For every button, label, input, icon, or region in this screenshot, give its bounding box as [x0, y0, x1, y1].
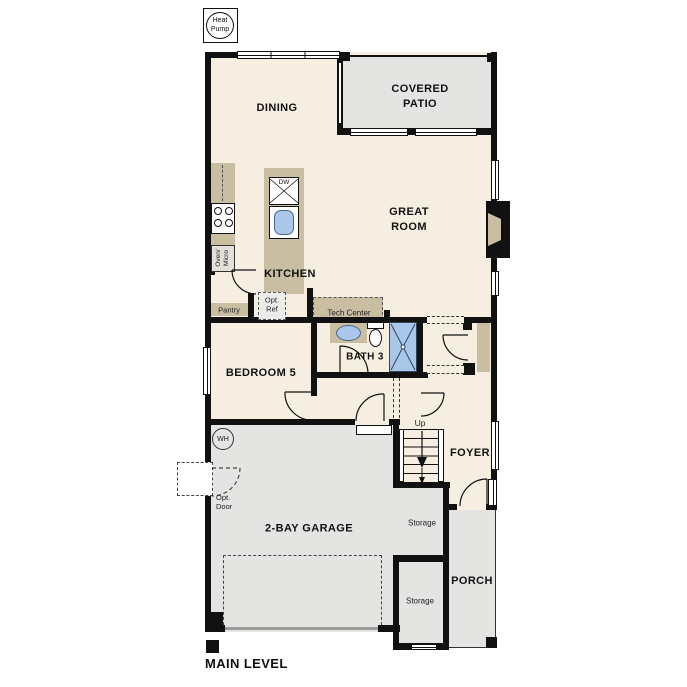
stair-treads	[404, 429, 439, 482]
window	[338, 62, 343, 124]
window	[491, 160, 499, 200]
room-label-dining: DINING	[257, 102, 298, 114]
window	[491, 421, 499, 470]
heat-pump-line1: Heat	[213, 17, 228, 25]
porch-column	[486, 637, 497, 648]
room-label-kitchen: KITCHEN	[264, 268, 316, 280]
room-label-garage: 2-BAY GARAGE	[259, 522, 359, 537]
wall	[443, 510, 449, 650]
shower	[389, 322, 417, 372]
patio-slider-door	[415, 128, 477, 136]
window	[237, 51, 340, 59]
kitchen-counter-upper	[211, 163, 235, 203]
cooktop	[211, 203, 235, 234]
stair-rail	[438, 429, 444, 482]
patio-slider-door	[350, 128, 408, 136]
wall	[378, 625, 400, 632]
wall	[311, 322, 317, 396]
floor-plan: Heat Pump	[0, 0, 687, 687]
dishwasher: DW	[269, 177, 299, 205]
label-opt-ref: Opt. Ref	[265, 296, 279, 315]
kitchen-counter-mid	[211, 234, 235, 245]
sink-basin	[274, 210, 294, 235]
fireplace	[486, 201, 510, 258]
wall	[307, 288, 313, 320]
wall	[417, 322, 423, 378]
water-heater-label: WH	[217, 436, 229, 443]
toilet-bowl	[369, 329, 382, 347]
water-heater: WH	[212, 428, 234, 450]
window	[491, 271, 499, 296]
fireplace-insert	[488, 213, 501, 246]
wall	[393, 562, 399, 650]
label-oven-micro: Oven/ Micro	[215, 249, 231, 266]
window	[411, 644, 437, 650]
counter-dashed-line	[222, 165, 223, 201]
kitchen-sink	[269, 206, 299, 239]
wall-post	[341, 52, 350, 61]
cased-opening	[393, 378, 400, 418]
wall	[393, 482, 450, 488]
garage-door-threshold	[225, 627, 378, 630]
wall	[463, 363, 475, 375]
room-label-bedroom5: BEDROOM 5	[226, 367, 296, 379]
wall	[248, 293, 254, 320]
heat-pump-label-bubble: Heat Pump	[206, 12, 234, 39]
wall-post	[205, 612, 223, 632]
room-label-storage-upper: Storage	[408, 519, 436, 528]
room-label-foyer: FOYER	[450, 447, 490, 459]
toilet-tank	[367, 322, 384, 329]
label-stairs-up: Up	[415, 418, 426, 428]
wall	[393, 555, 449, 562]
entry-bench	[477, 322, 490, 372]
plan-marker	[206, 640, 219, 653]
label-opt-door: Opt. Door	[216, 493, 232, 512]
dishwasher-label: DW	[279, 179, 290, 186]
heat-pump-unit: Heat Pump	[203, 8, 238, 43]
patio-edge	[343, 55, 494, 57]
wall	[463, 318, 472, 330]
room-label-porch: PORCH	[451, 575, 493, 587]
cased-opening	[427, 316, 464, 324]
heat-pump-line2: Pump	[211, 26, 229, 34]
plan-title: MAIN LEVEL	[205, 656, 288, 671]
room-label-storage-lower: Storage	[406, 597, 434, 606]
window	[203, 347, 211, 395]
entry-step	[356, 425, 392, 435]
room-label-great-room: GREAT ROOM	[373, 205, 445, 235]
opt-door-outline	[177, 462, 213, 496]
bath-sink	[336, 325, 361, 341]
label-tech-center: Tech Center	[327, 309, 370, 318]
garage-door-outline	[223, 555, 382, 625]
wall	[384, 310, 390, 319]
label-pantry: Pantry	[218, 306, 240, 315]
room-label-bath3: BATH 3	[346, 352, 384, 363]
entry-sidelite	[488, 479, 497, 506]
room-label-covered-patio: COVERED PATIO	[379, 82, 461, 112]
wall	[311, 372, 428, 378]
cased-opening	[427, 365, 464, 374]
wall	[205, 52, 211, 632]
stair-rail	[399, 429, 404, 482]
